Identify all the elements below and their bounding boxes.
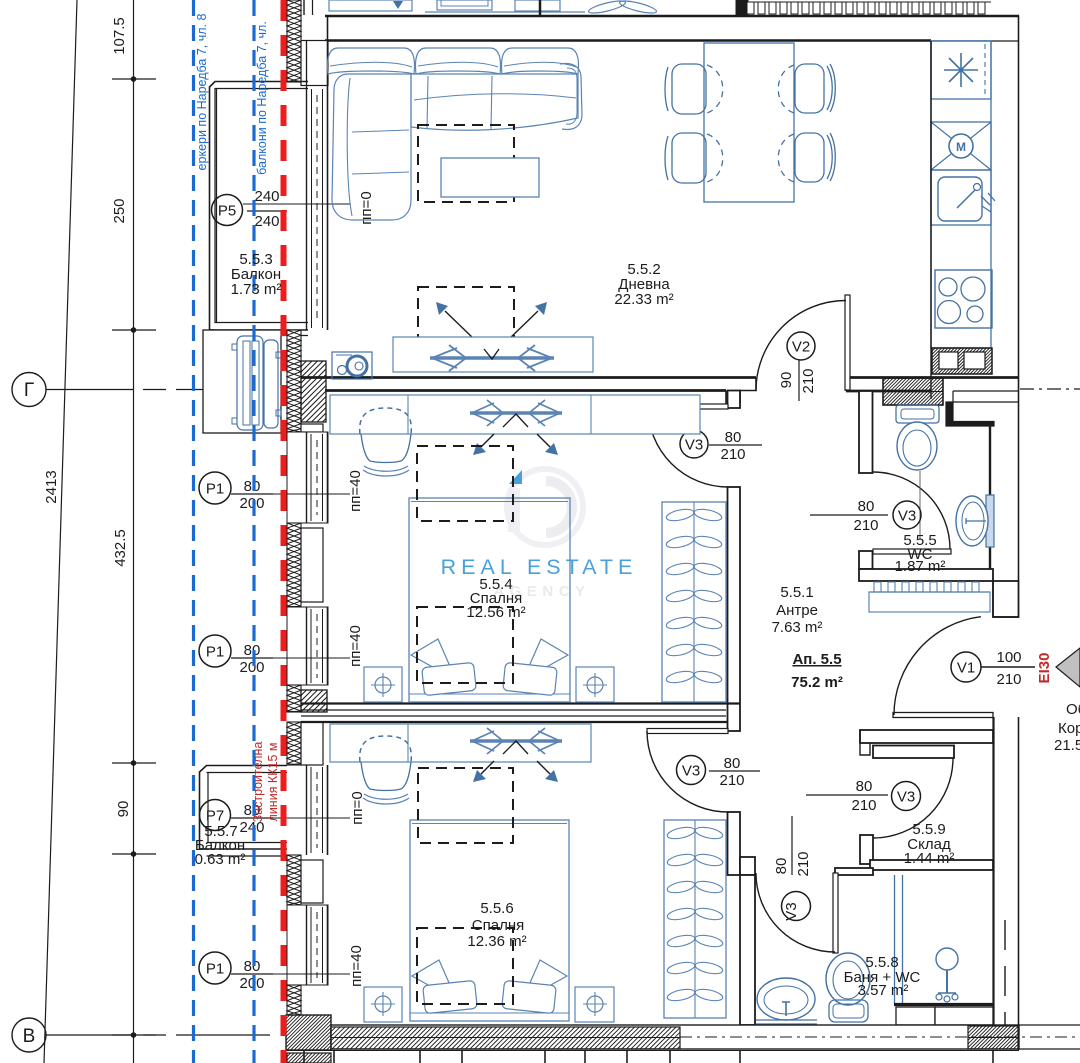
- svg-text:210: 210: [996, 671, 1021, 688]
- svg-text:75.2 m²: 75.2 m²: [791, 674, 843, 691]
- svg-text:еркери по Наредба 7, чл. 8: еркери по Наредба 7, чл. 8: [195, 14, 209, 171]
- svg-text:Спалня: Спалня: [472, 917, 524, 934]
- svg-text:240: 240: [254, 213, 279, 230]
- svg-text:90: 90: [115, 801, 132, 818]
- svg-text:P1: P1: [206, 644, 224, 661]
- svg-text:80: 80: [858, 498, 875, 515]
- svg-text:2413: 2413: [43, 470, 60, 503]
- svg-text:Ап. 5.5: Ап. 5.5: [792, 651, 841, 668]
- svg-text:V1: V1: [957, 660, 975, 677]
- svg-text:200: 200: [239, 495, 264, 512]
- svg-text:210: 210: [851, 797, 876, 814]
- svg-text:V3: V3: [685, 437, 703, 454]
- svg-text:80: 80: [725, 429, 742, 446]
- svg-text:1.87 m²: 1.87 m²: [895, 558, 946, 575]
- svg-text:5.5.6: 5.5.6: [480, 900, 513, 917]
- svg-text:22.33 m²: 22.33 m²: [614, 291, 673, 308]
- svg-text:7.63 m²: 7.63 m²: [772, 619, 823, 636]
- svg-text:линия КК15 м: линия КК15 м: [266, 743, 280, 822]
- svg-text:107.5: 107.5: [111, 17, 128, 55]
- svg-text:0.63 m²: 0.63 m²: [195, 851, 246, 868]
- svg-text:балкони по Наредба 7, чл.: балкони по Наредба 7, чл.: [255, 21, 269, 175]
- svg-text:210: 210: [853, 517, 878, 534]
- svg-text:V3: V3: [682, 763, 700, 780]
- svg-text:P7: P7: [206, 808, 224, 825]
- svg-text:80: 80: [724, 755, 741, 772]
- svg-text:240: 240: [254, 188, 279, 205]
- svg-text:200: 200: [239, 659, 264, 676]
- svg-text:3.57 m²: 3.57 m²: [858, 982, 909, 999]
- svg-text:V3: V3: [783, 902, 800, 920]
- svg-text:80: 80: [856, 778, 873, 795]
- svg-text:90: 90: [778, 372, 795, 389]
- svg-text:P5: P5: [218, 203, 236, 220]
- svg-text:Застроителна: Застроителна: [251, 742, 265, 823]
- svg-text:пп=40: пп=40: [347, 625, 364, 667]
- svg-text:210: 210: [720, 446, 745, 463]
- svg-text:200: 200: [239, 975, 264, 992]
- svg-text:P1: P1: [206, 481, 224, 498]
- svg-text:Общ: Общ: [1066, 701, 1080, 718]
- svg-text:P1: P1: [206, 961, 224, 978]
- svg-text:V3: V3: [897, 789, 915, 806]
- svg-text:210: 210: [800, 368, 817, 393]
- svg-text:210: 210: [719, 772, 744, 789]
- svg-text:80: 80: [244, 478, 261, 495]
- svg-text:V2: V2: [792, 339, 810, 356]
- svg-text:80: 80: [773, 858, 790, 875]
- svg-text:1.73 m²: 1.73 m²: [231, 281, 282, 298]
- svg-text:80: 80: [244, 642, 261, 659]
- svg-text:12.56 m²: 12.56 m²: [466, 604, 525, 621]
- svg-text:EI30: EI30: [1036, 653, 1053, 684]
- svg-text:250: 250: [111, 198, 128, 223]
- svg-text:M: M: [956, 140, 966, 154]
- svg-text:Коридор: Коридор: [1058, 720, 1080, 737]
- svg-text:80: 80: [244, 958, 261, 975]
- svg-text:1.44 m²: 1.44 m²: [904, 850, 955, 867]
- svg-text:пп=40: пп=40: [347, 470, 364, 512]
- svg-text:Антре: Антре: [776, 602, 818, 619]
- svg-text:В: В: [23, 1026, 36, 1047]
- svg-text:210: 210: [795, 851, 812, 876]
- svg-text:12.36 m²: 12.36 m²: [467, 933, 526, 950]
- svg-text:V3: V3: [898, 508, 916, 525]
- svg-text:пп=40: пп=40: [348, 945, 365, 987]
- svg-text:пп=0: пп=0: [349, 791, 366, 824]
- svg-text:432.5: 432.5: [112, 529, 129, 567]
- svg-text:100: 100: [996, 649, 1021, 666]
- svg-text:REAL ESTATE: REAL ESTATE: [441, 555, 638, 579]
- svg-text:21.5 m²: 21.5 m²: [1054, 737, 1080, 754]
- svg-text:Г: Г: [24, 380, 34, 401]
- svg-text:5.5.1: 5.5.1: [780, 584, 813, 601]
